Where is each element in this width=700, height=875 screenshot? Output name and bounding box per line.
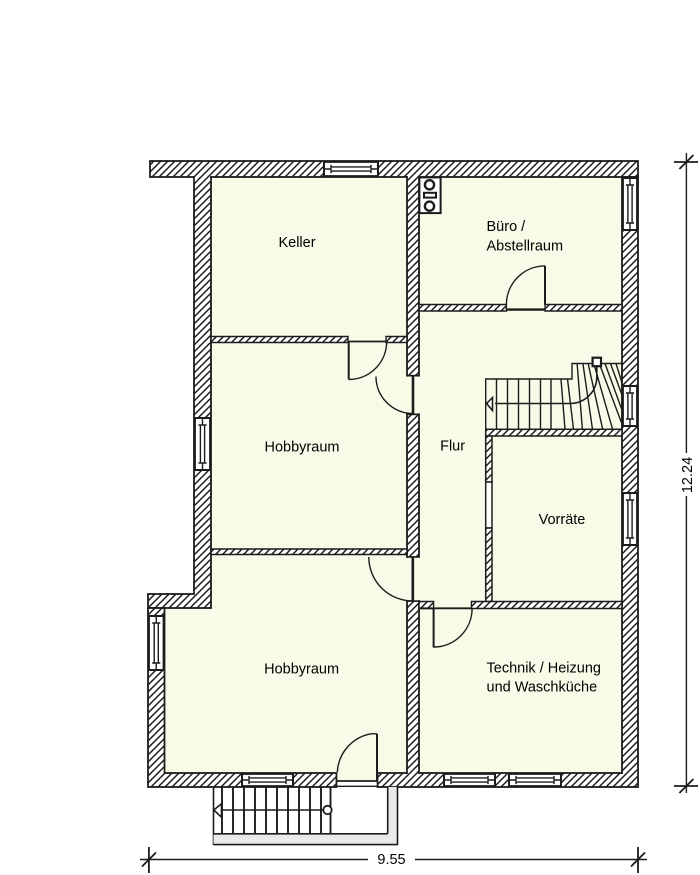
svg-text:Flur: Flur [440, 439, 465, 455]
svg-text:Technik / Heizung: Technik / Heizung [487, 661, 601, 677]
svg-text:9.55: 9.55 [377, 852, 405, 868]
svg-text:Hobbyraum: Hobbyraum [264, 661, 339, 677]
svg-text:12.24: 12.24 [680, 457, 696, 493]
svg-text:Abstellraum: Abstellraum [487, 238, 564, 254]
svg-text:Keller: Keller [278, 235, 315, 251]
svg-text:Büro /: Büro / [487, 219, 527, 235]
svg-text:Vorräte: Vorräte [539, 512, 586, 528]
svg-text:Hobbyraum: Hobbyraum [265, 440, 340, 456]
svg-text:und Waschküche: und Waschküche [487, 680, 598, 696]
